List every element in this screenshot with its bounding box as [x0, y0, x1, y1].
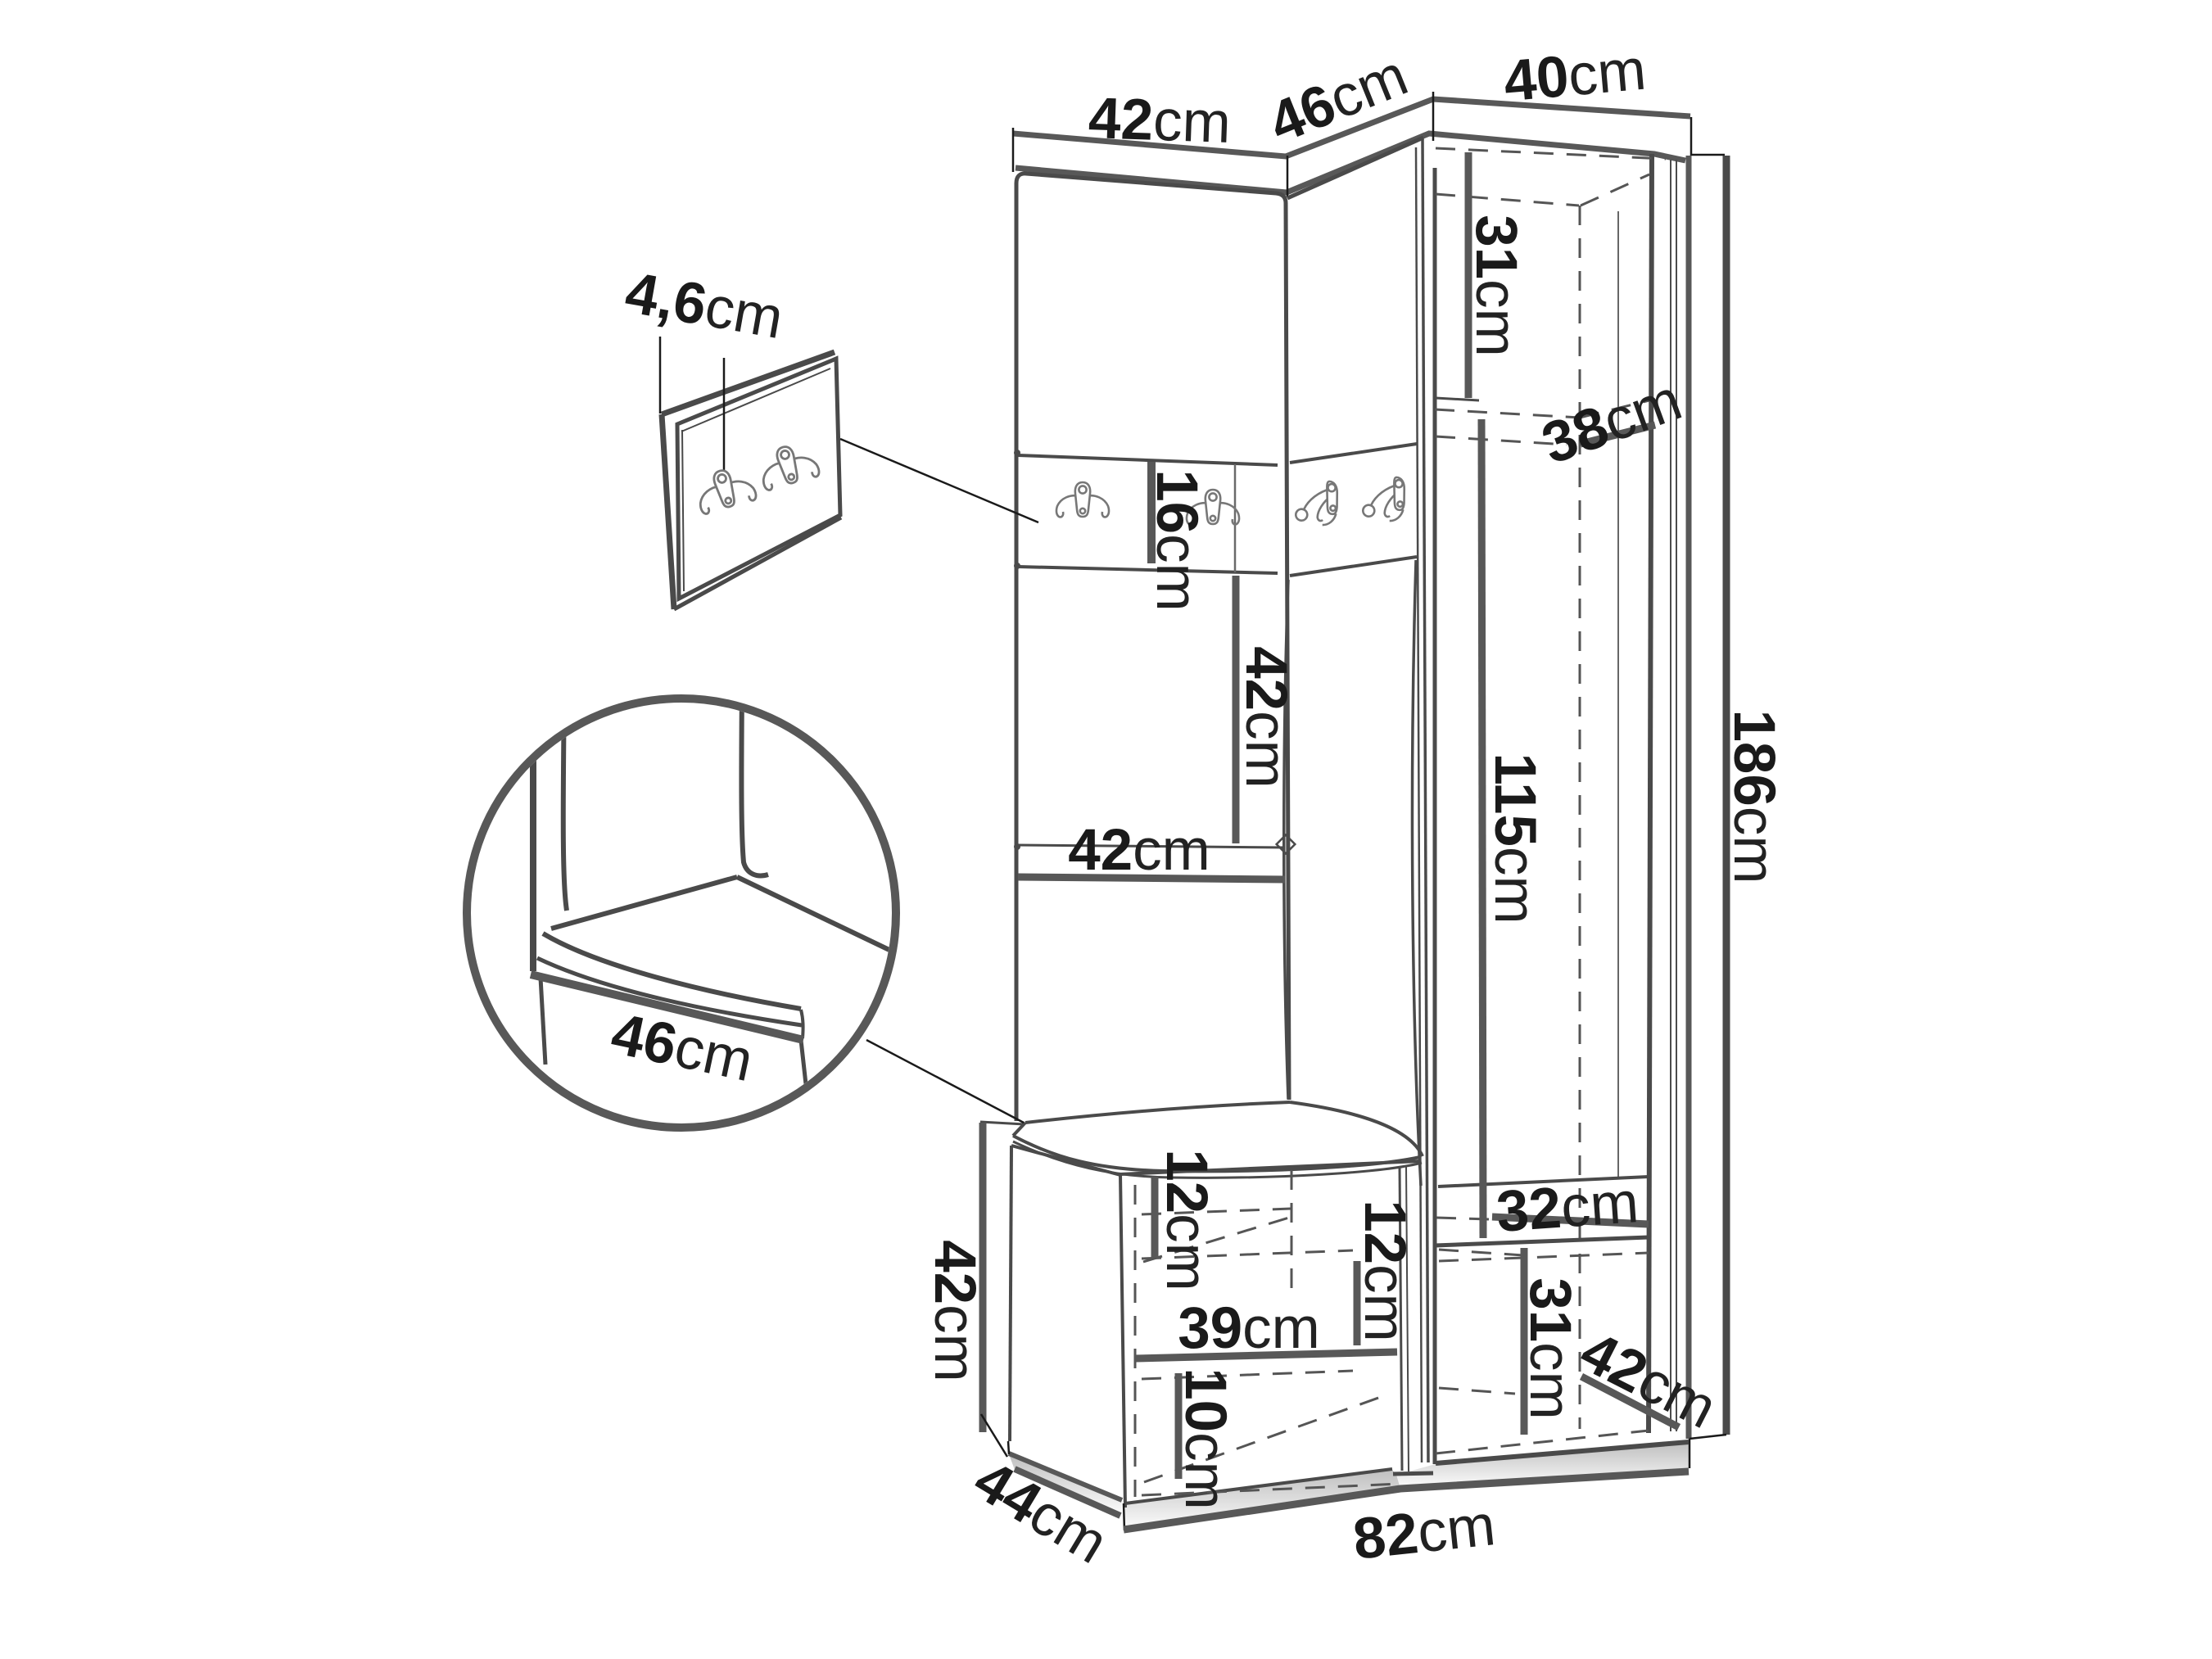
svg-text:39cm: 39cm	[1178, 1296, 1320, 1361]
svg-text:12cm: 12cm	[1155, 1149, 1219, 1291]
svg-text:42cm: 42cm	[1234, 646, 1299, 789]
svg-text:10cm: 10cm	[1174, 1367, 1238, 1510]
svg-text:115cm: 115cm	[1483, 753, 1548, 924]
svg-text:186cm: 186cm	[1722, 709, 1787, 884]
svg-text:32cm: 32cm	[1495, 1170, 1641, 1245]
svg-text:40cm: 40cm	[1501, 37, 1649, 114]
svg-text:31cm: 31cm	[1518, 1277, 1583, 1420]
svg-text:12cm: 12cm	[1353, 1200, 1418, 1342]
svg-text:16cm: 16cm	[1145, 469, 1210, 612]
svg-text:42cm: 42cm	[1088, 85, 1232, 155]
svg-text:31cm: 31cm	[1464, 215, 1529, 357]
svg-text:42cm: 42cm	[923, 1240, 988, 1382]
svg-text:42cm: 42cm	[1068, 818, 1210, 883]
